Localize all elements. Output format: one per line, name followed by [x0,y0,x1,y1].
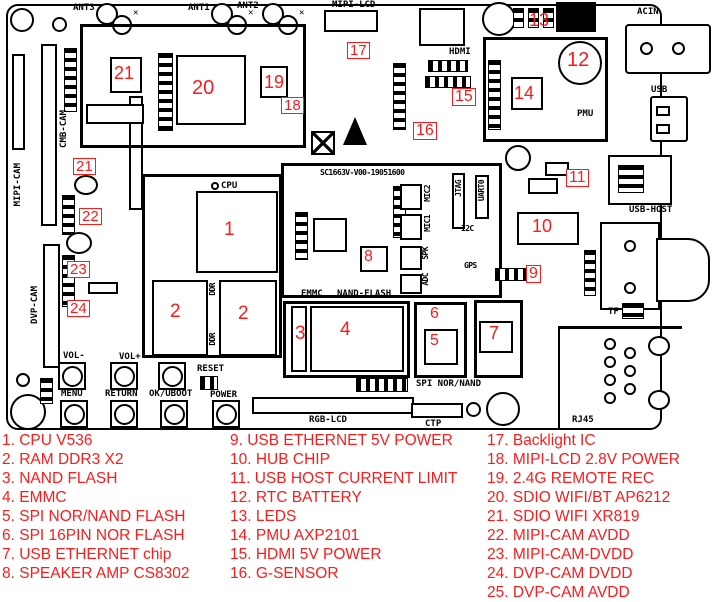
vol-minus-label: VOL- [63,352,85,361]
smd-pads [488,60,501,130]
legend-item: 6. SPI 16PIN NOR FLASH [2,526,190,545]
legend-item: 25. DVP-CAM AVDD [487,583,680,602]
board-marker-24: 24 [67,300,90,317]
board-marker-4: 4 [340,320,351,339]
acin-pin [672,42,685,55]
cpu-pin1-mark [211,182,219,190]
ctp-connector [411,403,463,418]
mic1-label: MIC1 [423,215,432,232]
board-marker-17: 17 [347,42,370,59]
gps-label: GPS [464,261,477,270]
smd-pads [428,60,468,72]
smd-pads [356,378,408,392]
ctp-label: CTP [425,420,441,429]
usb-host-label: USB-HOST [629,206,672,215]
antenna-label: ANT3 [73,4,95,13]
acin-pin [640,42,653,55]
acin-jack [625,24,711,74]
mounting-hole [10,8,34,32]
board-marker-13: 13 [529,11,549,29]
legend-item: 19. 2.4G REMOTE REC [487,469,680,488]
legend-column-2: 9. USB ETHERNET 5V POWER 10. HUB CHIP 11… [230,431,457,583]
return-label: RETURN [105,390,138,399]
mounting-hole [505,145,531,171]
rj45-pad [604,356,616,368]
board-marker-20: 20 [192,78,214,98]
board-marker-5: 5 [430,333,439,349]
uart0-label: UART0 [477,180,486,201]
nand-flash-label: NAND-FLASH [337,290,391,299]
spi-nor-nand-label: SPI NOR/NAND [416,380,481,389]
hdmi-connector [419,8,465,46]
legend-item: 7. USB ETHERNET chip [2,545,190,564]
usb-label: USB [651,86,667,95]
menu-label: MENU [61,390,83,399]
legend-item: 17. Backlight IC [487,431,680,450]
cam-connector [41,44,57,226]
ok-uboot-label: OK/UBOOT [149,390,192,399]
board-marker-15: 15 [452,88,476,106]
legend-item: 20. SDIO WIFI/BT AP6212 [487,488,680,507]
legend-item: 14. PMU AXP2101 [230,526,457,545]
spk-component [400,246,422,270]
power-label: POWER [210,391,237,400]
return-button [110,400,138,428]
dvp-cam-label: DVP-CAM [31,286,40,324]
antenna-label: ANT2 [237,2,259,11]
av-jack-body [600,222,660,310]
legend-item: 22. MIPI-CAM AVDD [487,526,680,545]
emmc-chip [310,306,404,372]
vol-minus-button [58,362,86,390]
legend-item: 5. SPI NOR/NAND FLASH [2,507,190,526]
legend-item: 4. EMMC [2,488,190,507]
crossed-component [311,131,335,155]
rj45-pad [604,374,616,386]
legend-item: 23. MIPI-CAM-DVDD [487,545,680,564]
board-marker-22: 22 [79,208,102,225]
capacitor [74,175,98,195]
mipi-cam-label: MIPI-CAM [14,163,23,206]
menu-button [60,400,88,428]
reset-label: RESET [197,365,224,374]
av-jack-plug [656,238,710,302]
legend-column-3: 17. Backlight IC 18. MIPI-LCD 2.8V POWER… [487,431,680,602]
spk-label: SPK [421,247,430,260]
rj45-pad [604,392,616,404]
legend-item: 21. SDIO WIFI XR819 [487,507,680,526]
smd-component [88,282,118,294]
legend-item: 24. DVP-CAM DVDD [487,564,680,583]
legend-item: 12. RTC BATTERY [230,488,457,507]
adc-label: ADC [421,273,430,286]
mipi-cam-connector [12,54,25,150]
board-marker-10: 10 [532,217,552,235]
vol-plus-label: VOL+ [119,353,141,362]
mounting-hole [482,2,516,36]
vol-plus-button [110,362,138,390]
legend-item: 8. SPEAKER AMP CS8302 [2,564,190,583]
rj45-magnetics [648,390,670,410]
capacitor [66,232,92,254]
rj45-pad [604,338,616,350]
legend-item: 11. USB HOST CURRENT LIMIT [230,469,457,488]
board-marker-21b: 21 [73,158,96,175]
tf-label: TF [608,308,619,317]
antenna-label: ANT1 [188,4,210,13]
mipi-lcd-connector [324,10,378,32]
ddr-label: DDR [208,283,217,296]
led [513,8,524,28]
smd-pads [393,63,406,130]
smd-pads [425,76,471,88]
rgb-lcd-label: RGB-LCD [309,416,347,425]
legend-item: 9. USB ETHERNET 5V POWER [230,431,457,450]
ok-uboot-button2 [160,400,188,428]
emmc-label: EMMC [301,290,323,299]
legend-item: 2. RAM DDR3 X2 [2,450,190,469]
usb-pin [656,124,670,134]
smd-pads [584,250,596,296]
board-marker-19: 19 [264,73,284,91]
g-sensor-mark [343,117,367,145]
audio-chip [313,218,347,252]
board-marker-12: 12 [567,50,589,70]
av-jack-hole [624,282,636,294]
mounting-hole [466,402,481,417]
board-marker-1: 1 [224,220,235,239]
cmb-cam-label: CMB-CAM [60,110,69,148]
av-jack-hole [624,240,636,252]
legend-item: 18. MIPI-LCD 2.8V POWER [487,450,680,469]
smd-pads [295,212,308,260]
smd-component [86,104,144,124]
legend-item: 13. LEDS [230,507,457,526]
hdmi-label: HDMI [449,48,471,57]
board-marker-14: 14 [514,84,534,102]
board-marker-7: 7 [489,324,499,342]
edge-connector [556,2,596,32]
dvp-cam-connector [43,244,60,368]
rj45-pad [624,383,636,395]
rgb-lcd-connector [252,397,414,414]
legend-item: 1. CPU V536 [2,431,190,450]
rj45-label: RJ45 [572,416,594,425]
mounting-hole [486,392,520,426]
board-marker-3: 3 [295,324,306,343]
mic-component [400,214,422,240]
cpu-label: CPU [221,182,237,191]
board-marker-11: 11 [566,169,589,187]
antenna-symbol: ✕ [299,9,304,18]
smd-pads [62,195,75,235]
tf-slot [622,303,644,319]
mounting-hole [52,17,67,32]
smd-component [528,178,558,194]
rj45-pad [624,347,636,359]
board-marker-8: 8 [364,249,373,265]
smd-pads [40,378,53,404]
board-marker-2a: 2 [170,302,181,321]
adc-component [400,274,422,294]
board-marker-2b: 2 [238,304,249,323]
reset-switch [200,376,218,390]
board-marker-21a: 21 [114,64,134,82]
legend-item: 10. HUB CHIP [230,450,457,469]
ddr-label: DDR [208,333,217,346]
jtag-label: JTAG [454,180,463,197]
usb-pin [656,106,670,116]
legend-item: 15. HDMI 5V POWER [230,545,457,564]
smd-pads [64,48,77,112]
board-marker-16: 16 [413,122,437,140]
board-marker-6: 6 [430,306,439,322]
mic2-label: MIC2 [423,185,432,202]
power-button [212,400,240,428]
legend-item: 3. NAND FLASH [2,469,190,488]
antenna-symbol: ✕ [133,9,138,18]
usb-host-pins [618,165,644,193]
mic-component [400,184,422,210]
pmu-label: PMU [577,110,593,119]
board-marker-18: 18 [281,97,304,114]
cpu-chip [196,191,278,273]
mounting-hole [16,373,30,387]
pcb-annotation-diagram: ANT3 ✕ ANT1 ✕ ANT2 ✕ MIPI-CAM CMB-CAM DV… [0,0,715,602]
board-id-text: SC1663V-V00-19051600 [320,168,404,177]
rj45-magnetics [648,336,670,356]
ok-uboot-button [158,362,186,390]
smd-pads [158,53,173,131]
board-marker-23: 23 [67,261,90,278]
board-marker-9: 9 [526,265,541,283]
usb-connector [650,96,688,142]
mipi-lcd-label: MIPI-LCD [332,1,375,10]
acin-label: ACIN [637,8,659,17]
i2c-label: I2C [461,224,474,233]
legend-column-1: 1. CPU V536 2. RAM DDR3 X2 3. NAND FLASH… [2,431,190,583]
legend-item: 16. G-SENSOR [230,564,457,583]
rj45-pad [624,365,636,377]
